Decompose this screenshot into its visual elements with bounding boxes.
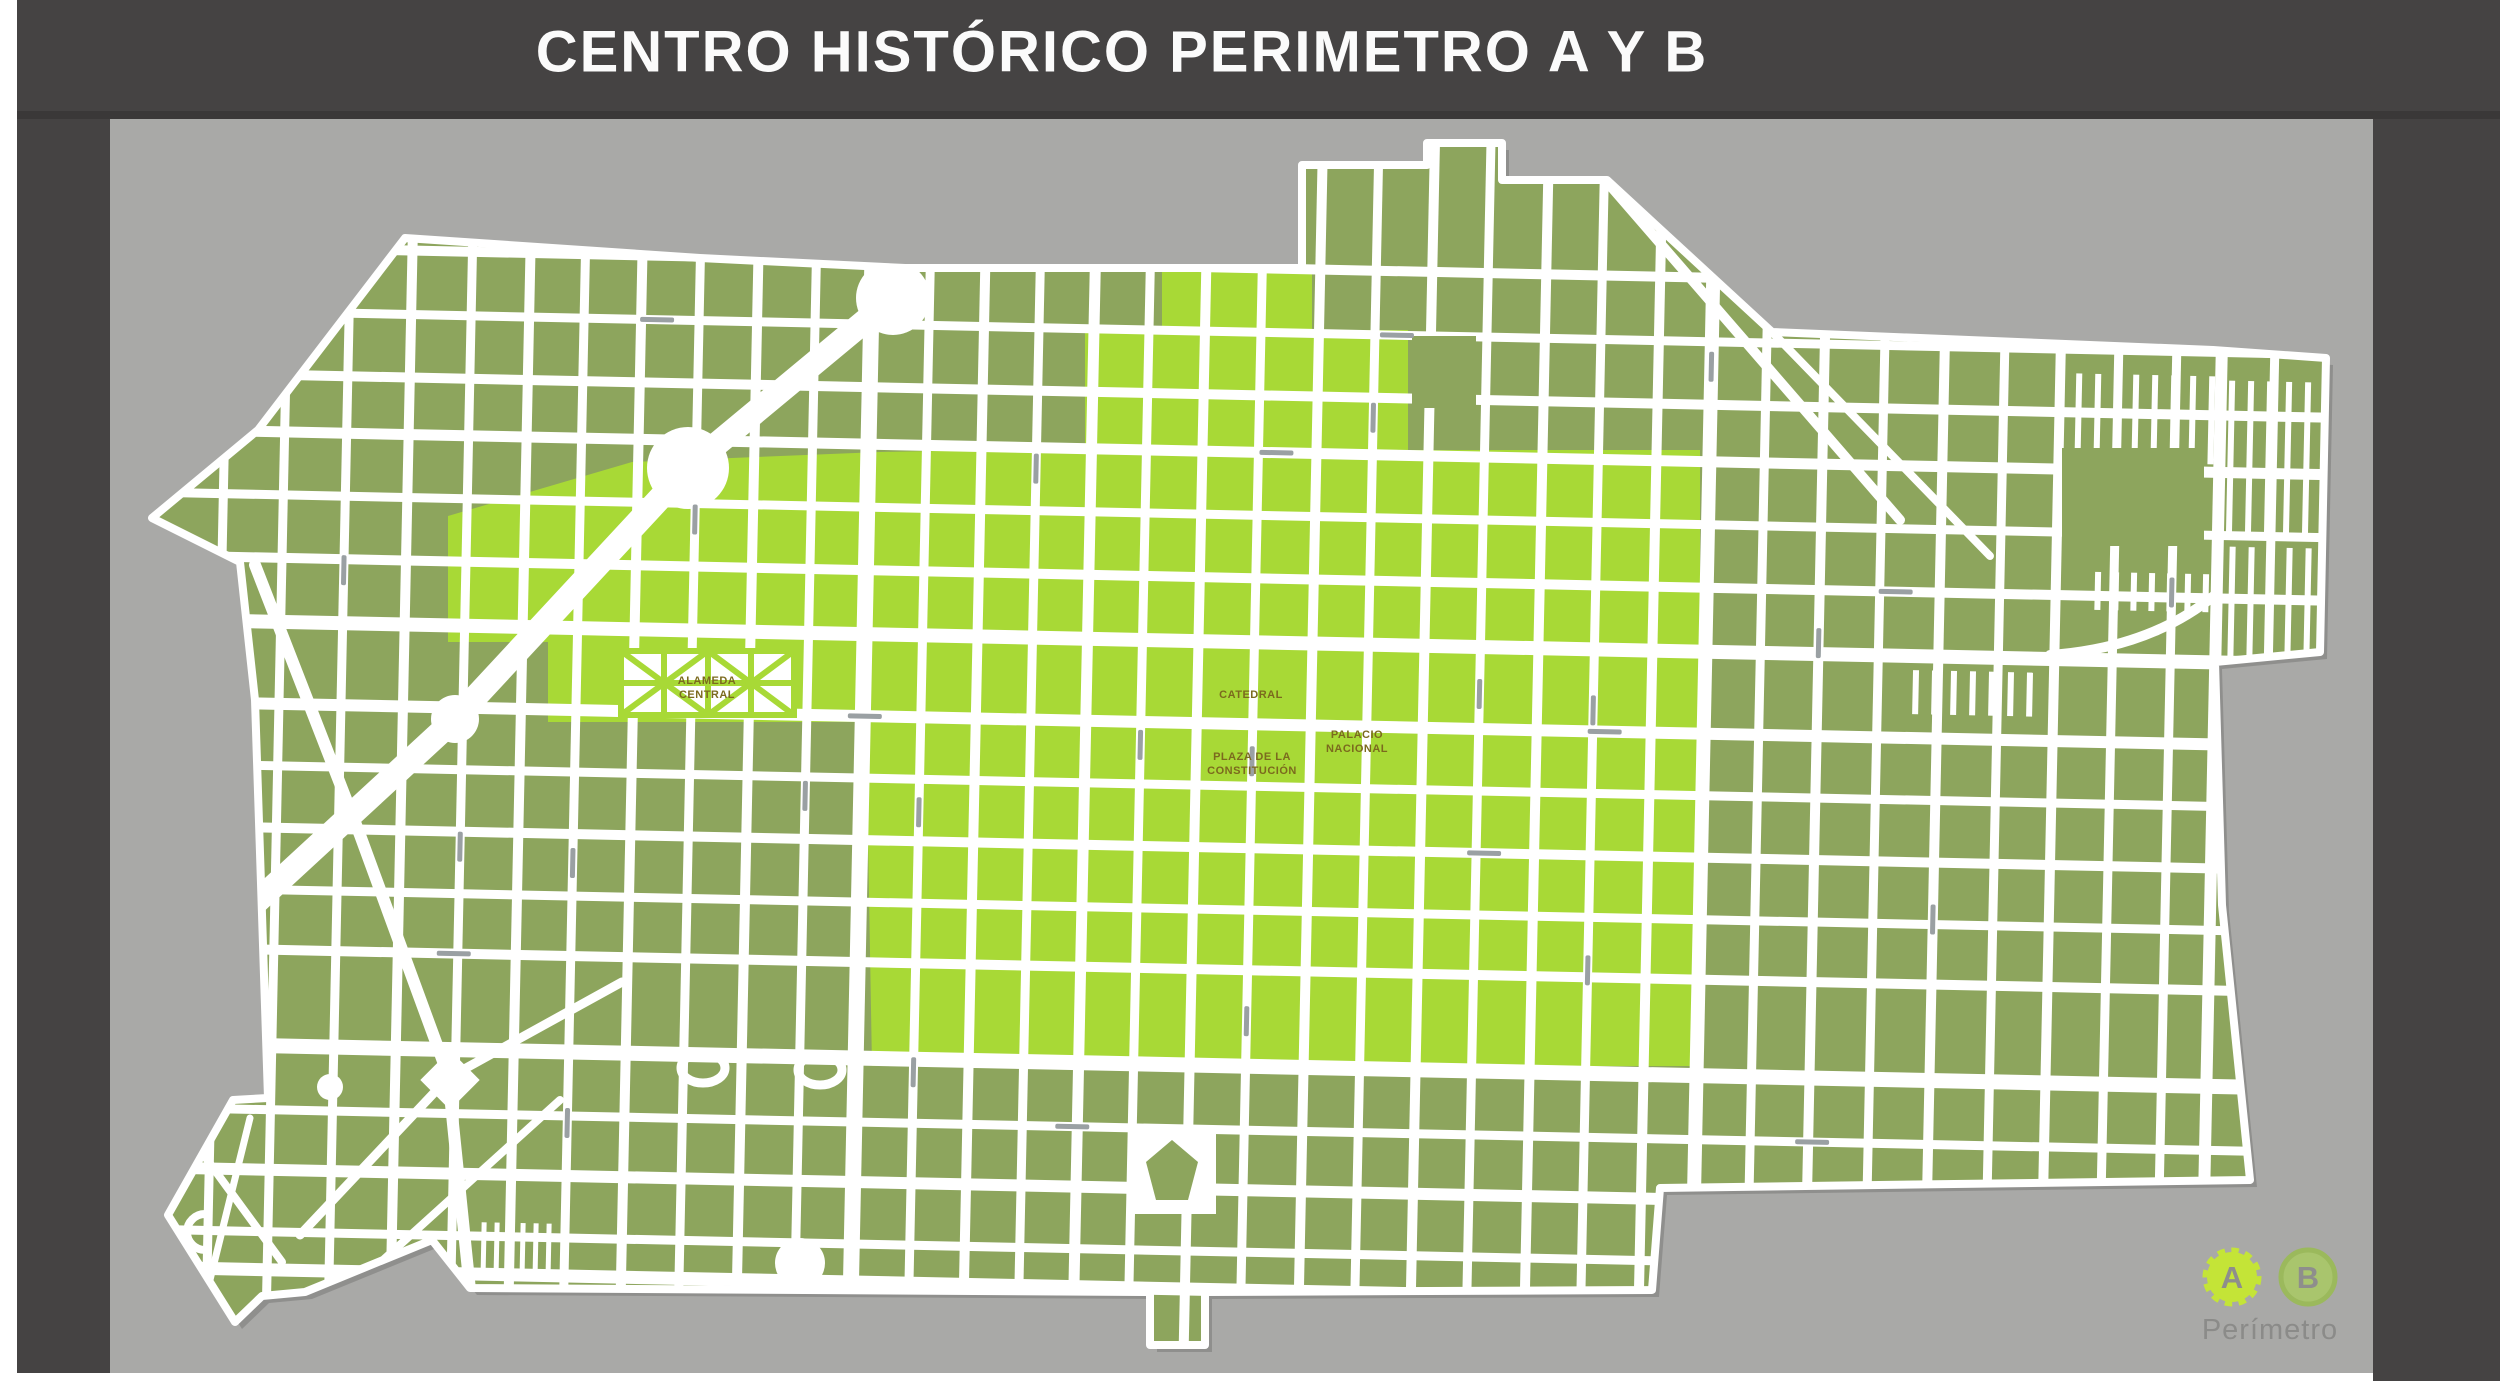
map-canvas: ALAMEDA CENTRAL CATEDRAL PLAZA DE LA CON… xyxy=(0,0,2500,1398)
alameda-label-1: ALAMEDA xyxy=(678,675,737,687)
perimeter-b-letter: B xyxy=(2297,1260,2319,1295)
zocalo-label-2: CONSTITUCIÓN xyxy=(1207,764,1297,777)
palacio-label-2: NACIONAL xyxy=(1326,743,1388,755)
legend: A B Perímetro xyxy=(2190,1244,2350,1347)
zocalo-label-1: PLAZA DE LA xyxy=(1213,751,1291,763)
legend-caption: Perímetro xyxy=(2190,1314,2350,1347)
perimeter-a-letter: A xyxy=(2221,1260,2243,1295)
alameda-label-2: CENTRAL xyxy=(679,689,735,701)
perimeter-b-badge: B xyxy=(2275,1244,2341,1310)
plaza-block xyxy=(1128,1128,1216,1214)
catedral-label: CATEDRAL xyxy=(1219,689,1283,701)
perimeter-a-badge: A xyxy=(2199,1244,2265,1310)
palacio-label-1: PALACIO xyxy=(1331,729,1383,741)
